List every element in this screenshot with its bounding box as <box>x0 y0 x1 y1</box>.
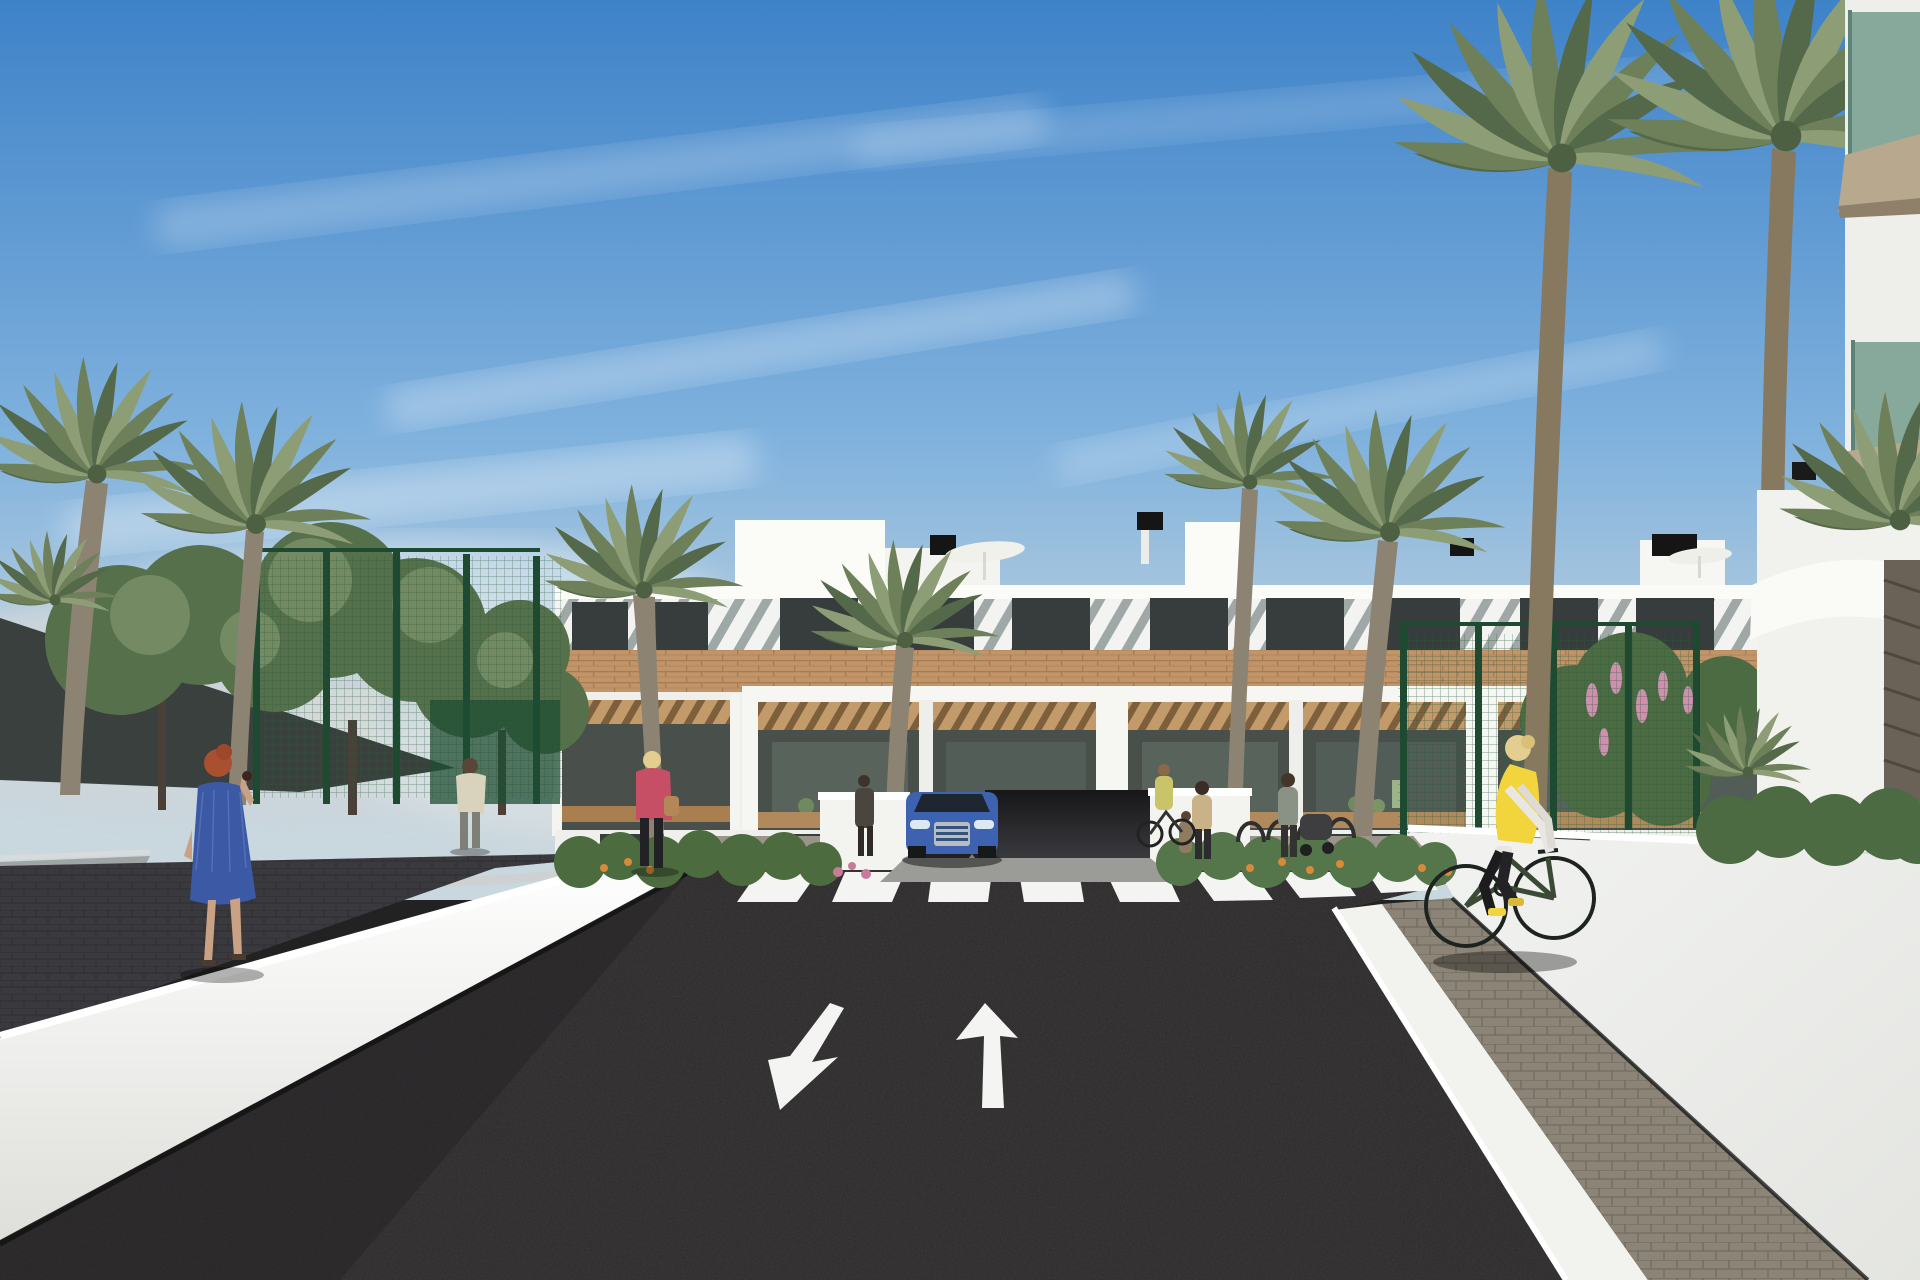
hair-bun <box>216 744 232 760</box>
leg <box>640 818 649 866</box>
leg <box>1281 825 1288 857</box>
shadow <box>631 867 679 877</box>
window <box>1012 598 1090 650</box>
frame-header <box>742 686 1112 700</box>
window <box>1266 598 1344 650</box>
fence-screen-panel <box>430 700 560 804</box>
glass-edge <box>1848 10 1852 160</box>
head <box>858 775 870 787</box>
torso <box>855 788 874 828</box>
stroller-wheel <box>1322 842 1334 854</box>
terrace-chair <box>798 798 814 814</box>
shirt <box>456 773 486 814</box>
render-canvas <box>0 0 1920 1280</box>
leg <box>1290 825 1297 857</box>
leg <box>460 812 468 850</box>
shadow <box>1433 951 1577 973</box>
rider-hair-bun <box>1521 735 1535 749</box>
head <box>643 751 661 769</box>
chimney-box <box>1137 512 1163 530</box>
frame-pillar <box>730 694 740 836</box>
torso <box>1278 787 1298 827</box>
car-grille-slats <box>936 826 968 841</box>
garage-opening <box>985 790 1150 858</box>
car-wheel-left <box>908 846 926 858</box>
head <box>462 758 478 774</box>
parapet-band <box>555 585 1770 599</box>
window <box>1150 598 1228 650</box>
sandal <box>232 954 246 960</box>
chimney-post <box>1141 530 1149 564</box>
phone <box>242 771 252 781</box>
torso <box>1192 795 1212 831</box>
rider-shoe <box>1488 908 1506 916</box>
window <box>572 602 628 650</box>
handbag <box>664 796 679 816</box>
glass-edge <box>1851 340 1855 456</box>
leg <box>654 818 663 868</box>
fg-balcony-1 <box>1838 10 1920 218</box>
tree-trunk <box>158 700 166 810</box>
stroller-wheel <box>1300 844 1312 856</box>
leg <box>472 812 480 848</box>
car-windshield <box>914 794 990 812</box>
roof-stair-tower <box>1185 522 1245 592</box>
leg <box>858 826 864 856</box>
car-wheel-right <box>978 846 996 858</box>
car-headlight-left <box>910 820 930 829</box>
car-headlight-right <box>974 820 994 829</box>
stroller <box>1300 814 1332 840</box>
leg <box>1204 829 1211 859</box>
child-body <box>1179 821 1192 853</box>
window <box>652 602 708 650</box>
car <box>902 792 1002 868</box>
torso <box>1155 776 1173 810</box>
sandal <box>202 960 216 966</box>
leg <box>867 826 873 856</box>
head <box>1158 764 1170 776</box>
rider-shoe <box>1508 898 1524 906</box>
shadow <box>180 967 264 983</box>
head <box>1281 773 1295 787</box>
frame-pillar <box>742 686 758 842</box>
head <box>1195 781 1209 795</box>
shadow <box>450 848 490 856</box>
scene-svg <box>0 0 1920 1280</box>
leg <box>1195 829 1202 859</box>
glass-balustrade <box>1852 12 1920 158</box>
left-fence <box>250 548 562 804</box>
